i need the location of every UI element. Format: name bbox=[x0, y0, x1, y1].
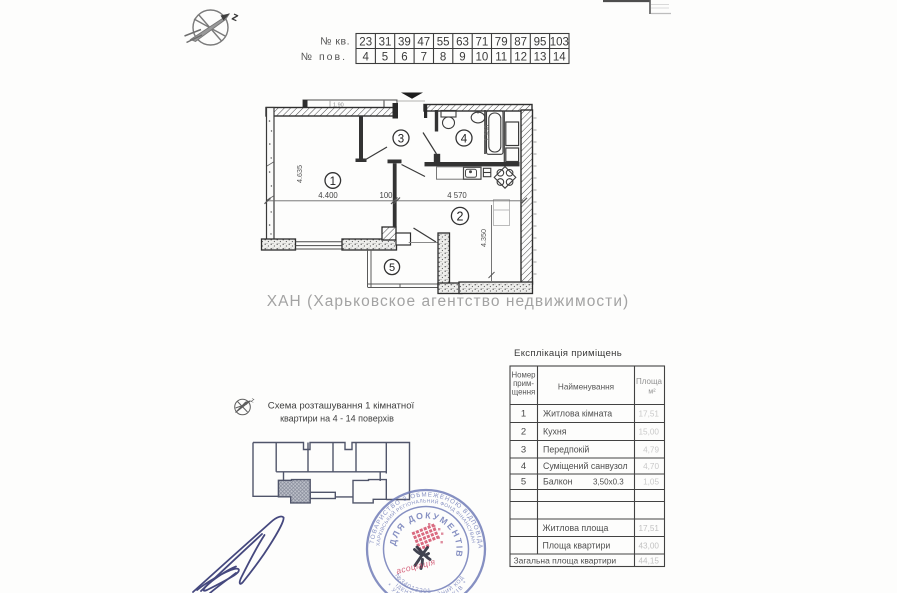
svg-text:103: 103 bbox=[550, 37, 569, 49]
svg-text:№ пов.: № пов. bbox=[301, 51, 347, 63]
svg-text:1: 1 bbox=[330, 176, 336, 188]
svg-text:17,51: 17,51 bbox=[639, 410, 660, 419]
svg-text:4.350: 4.350 bbox=[479, 229, 488, 247]
svg-text:Житлова кімната: Житлова кімната bbox=[543, 409, 612, 419]
svg-text:1: 1 bbox=[521, 409, 526, 420]
svg-text:м²: м² bbox=[648, 389, 656, 396]
svg-text:3: 3 bbox=[398, 133, 404, 145]
svg-text:63: 63 bbox=[456, 37, 469, 49]
svg-text:23: 23 bbox=[359, 37, 372, 49]
svg-text:Загальна площа квартири: Загальна площа квартири bbox=[514, 556, 617, 566]
svg-text:4.400: 4.400 bbox=[318, 191, 338, 200]
svg-text:щення: щення bbox=[512, 388, 536, 397]
svg-text:Схема розташування 1 кімнатної: Схема розташування 1 кімнатної bbox=[268, 401, 415, 412]
svg-text:4 570: 4 570 bbox=[447, 191, 467, 200]
svg-text:Площа: Площа bbox=[636, 377, 663, 386]
svg-text:2: 2 bbox=[457, 210, 464, 224]
svg-text:3: 3 bbox=[521, 445, 526, 456]
svg-text:55: 55 bbox=[437, 37, 450, 49]
svg-text:43,00: 43,00 bbox=[639, 542, 660, 551]
svg-text:87: 87 bbox=[514, 37, 527, 49]
svg-text:ХАН (Харьковское агентство нед: ХАН (Харьковское агентство недвижимости) bbox=[267, 293, 630, 310]
svg-text:z: z bbox=[230, 9, 241, 24]
svg-text:6: 6 bbox=[401, 52, 407, 64]
svg-text:31: 31 bbox=[379, 37, 392, 49]
svg-text:4: 4 bbox=[362, 52, 369, 64]
svg-text:5: 5 bbox=[521, 477, 526, 488]
svg-text:4: 4 bbox=[521, 461, 526, 472]
svg-text:5: 5 bbox=[389, 262, 395, 274]
svg-text:Експлікація приміщень: Експлікація приміщень bbox=[514, 348, 622, 359]
svg-text:7: 7 bbox=[421, 52, 427, 64]
svg-text:4.635: 4.635 bbox=[295, 165, 304, 183]
svg-text:Передпокій: Передпокій bbox=[543, 445, 589, 455]
svg-text:Площа квартири: Площа квартири bbox=[543, 541, 611, 551]
svg-text:44,15: 44,15 bbox=[639, 557, 660, 566]
svg-text:4,79: 4,79 bbox=[643, 446, 659, 455]
svg-text:z: z bbox=[250, 397, 255, 405]
svg-text:47: 47 bbox=[417, 37, 430, 49]
svg-text:№ кв.: № кв. bbox=[320, 36, 350, 48]
svg-text:4,70: 4,70 bbox=[643, 462, 659, 471]
svg-text:Кухня: Кухня bbox=[543, 427, 567, 437]
svg-text:11: 11 bbox=[495, 52, 507, 64]
svg-text:15,00: 15,00 bbox=[639, 428, 660, 437]
svg-text:39: 39 bbox=[398, 37, 411, 49]
svg-text:1.950: 1.950 bbox=[484, 124, 491, 141]
svg-text:14: 14 bbox=[553, 52, 566, 64]
svg-text:Балкон: Балкон bbox=[543, 477, 573, 487]
svg-text:Суміщений санвузол: Суміщений санвузол bbox=[543, 461, 628, 471]
svg-text:асоціація: асоціація bbox=[395, 557, 436, 576]
svg-text:17,51: 17,51 bbox=[639, 524, 660, 533]
svg-text:8: 8 bbox=[440, 52, 446, 64]
svg-text:квартири на 4 - 14 поверхів: квартири на 4 - 14 поверхів bbox=[280, 414, 394, 424]
svg-text:100: 100 bbox=[379, 191, 393, 200]
svg-text:Житлова площа: Житлова площа bbox=[543, 523, 609, 533]
svg-text:ТОВАРИСТВО З ОБМЕЖЕНОЮ ВІДПОВІ: ТОВАРИСТВО З ОБМЕЖЕНОЮ ВІДПОВІДАЛЬН bbox=[0, 0, 484, 549]
svg-text:Найменування: Найменування bbox=[558, 383, 614, 392]
svg-text:3,50х0.3: 3,50х0.3 bbox=[593, 478, 624, 487]
svg-text:4: 4 bbox=[461, 133, 468, 145]
svg-text:95: 95 bbox=[534, 37, 547, 49]
svg-text:71: 71 bbox=[476, 37, 489, 49]
svg-text:5: 5 bbox=[382, 52, 388, 64]
svg-text:9: 9 bbox=[459, 52, 465, 64]
svg-text:13: 13 bbox=[534, 52, 547, 64]
svg-text:12: 12 bbox=[514, 52, 527, 64]
svg-text:1,05: 1,05 bbox=[643, 478, 659, 487]
svg-text:79: 79 bbox=[495, 37, 508, 49]
svg-text:10: 10 bbox=[476, 52, 489, 64]
svg-text:2: 2 bbox=[521, 427, 526, 438]
